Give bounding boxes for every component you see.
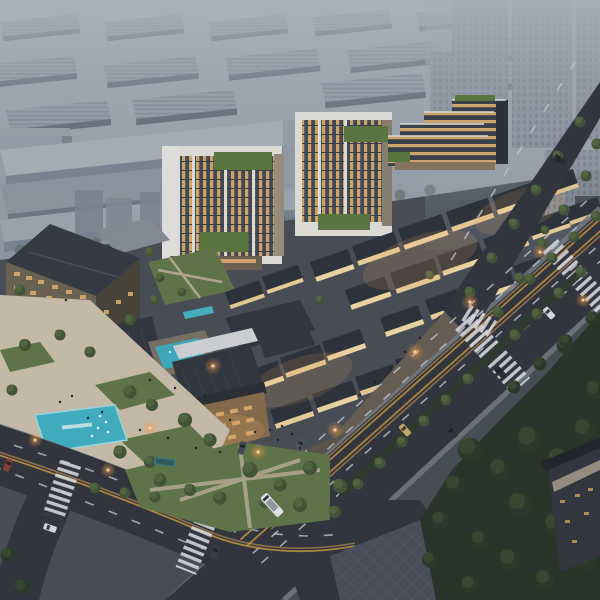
- aerial-rendering: [0, 0, 600, 600]
- dusk-tint-overlay: [0, 0, 600, 600]
- rendering-canvas: Aerial dusk rendering of a mixed-use dev…: [0, 0, 600, 600]
